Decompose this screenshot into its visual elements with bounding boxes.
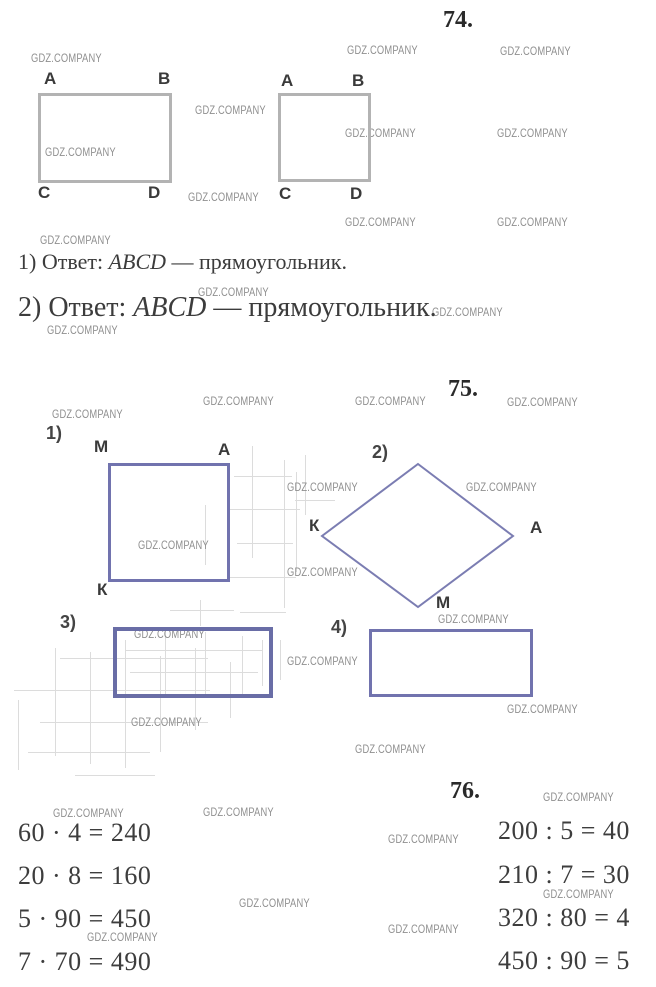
vertex-label-c: C [279,185,291,202]
sketch-line [240,612,286,613]
vertex-label-a: A [281,72,293,89]
vertex-label-a: А [218,441,230,458]
sketch-line [170,610,234,611]
sketch-line [252,446,253,558]
equation: 5 · 90 = 450 [18,906,151,932]
watermark: GDZ.COMPANY [543,889,614,901]
watermark: GDZ.COMPANY [432,307,503,319]
answer-prefix: 2) Ответ: [18,292,133,323]
watermark: GDZ.COMPANY [347,45,418,57]
vertex-label-m: М [436,594,450,611]
watermark: GDZ.COMPANY [203,396,274,408]
equation: 7 · 70 = 490 [18,949,151,975]
sketch-line [90,652,91,764]
watermark: GDZ.COMPANY [507,704,578,716]
equation: 210 : 7 = 30 [498,862,630,888]
sketch-line [234,476,292,477]
watermark: GDZ.COMPANY [40,235,111,247]
watermark: GDZ.COMPANY [87,932,158,944]
sketch-line [28,752,150,753]
vertex-label-b: B [352,72,364,89]
vertex-label-d: D [148,184,160,201]
sketch-line [237,543,293,544]
item-4-label: 4) [331,618,347,636]
watermark: GDZ.COMPANY [239,898,310,910]
figure-74-rectangle-1 [38,93,172,183]
answer-suffix: — прямоугольник. [206,292,436,323]
watermark: GDZ.COMPANY [438,614,509,626]
vertex-label-b: B [158,70,170,87]
watermark: GDZ.COMPANY [388,834,459,846]
answer-prefix: 1) Ответ: [18,249,109,274]
watermark: GDZ.COMPANY [287,656,358,668]
watermark: GDZ.COMPANY [507,397,578,409]
answer-figure-name: ABCD [109,249,166,274]
equation: 200 : 5 = 40 [498,818,630,844]
watermark: GDZ.COMPANY [203,807,274,819]
sketch-line [284,460,285,608]
equation: 60 · 4 = 240 [18,820,151,846]
watermark: GDZ.COMPANY [355,396,426,408]
watermark: GDZ.COMPANY [543,792,614,804]
equation: 20 · 8 = 160 [18,863,151,889]
problem-75-number: 75. [448,377,478,401]
vertex-label-c: C [38,184,50,201]
answer-line-1: 1) Ответ: ABCD — прямоугольник. [18,250,347,273]
watermark: GDZ.COMPANY [497,217,568,229]
answer-line-2: 2) Ответ: ABCD — прямоугольник. [18,293,437,322]
figure-75-square [108,463,230,582]
watermark: GDZ.COMPANY [497,128,568,140]
watermark: GDZ.COMPANY [31,53,102,65]
watermark: GDZ.COMPANY [47,325,118,337]
watermark: GDZ.COMPANY [131,717,202,729]
watermark: GDZ.COMPANY [500,46,571,58]
answer-suffix: — прямоугольник. [166,249,347,274]
sketch-line [280,640,281,680]
vertex-label-k: К [309,517,319,534]
gdz-answers-page: GDZ.COMPANY GDZ.COMPANY GDZ.COMPANY GDZ.… [0,0,656,987]
problem-74-number: 74. [443,8,473,32]
sketch-line [75,775,155,776]
watermark: GDZ.COMPANY [195,105,266,117]
watermark: GDZ.COMPANY [355,744,426,756]
answer-figure-name: ABCD [133,292,206,323]
vertex-label-m: М [94,438,108,455]
sketch-line [200,600,201,626]
figure-75-rectangle-4 [369,629,533,697]
figure-74-rectangle-2 [278,93,371,182]
vertex-label-a: А [530,519,542,536]
figure-75-rectangle-3 [113,627,273,698]
item-1-label: 1) [46,424,62,442]
problem-76-number: 76. [450,779,480,803]
watermark: GDZ.COMPANY [52,409,123,421]
vertex-label-a: A [44,70,56,87]
vertex-label-d: D [350,185,362,202]
item-3-label: 3) [60,613,76,631]
sketch-line [228,509,300,510]
watermark: GDZ.COMPANY [345,217,416,229]
figure-75-rhombus [312,455,522,615]
watermark: GDZ.COMPANY [388,924,459,936]
watermark: GDZ.COMPANY [188,192,259,204]
equation: 450 : 90 = 5 [498,948,630,974]
vertex-label-k: К [97,581,107,598]
equation: 320 : 80 = 4 [498,905,630,931]
sketch-line [18,700,19,770]
sketch-line [55,648,56,756]
